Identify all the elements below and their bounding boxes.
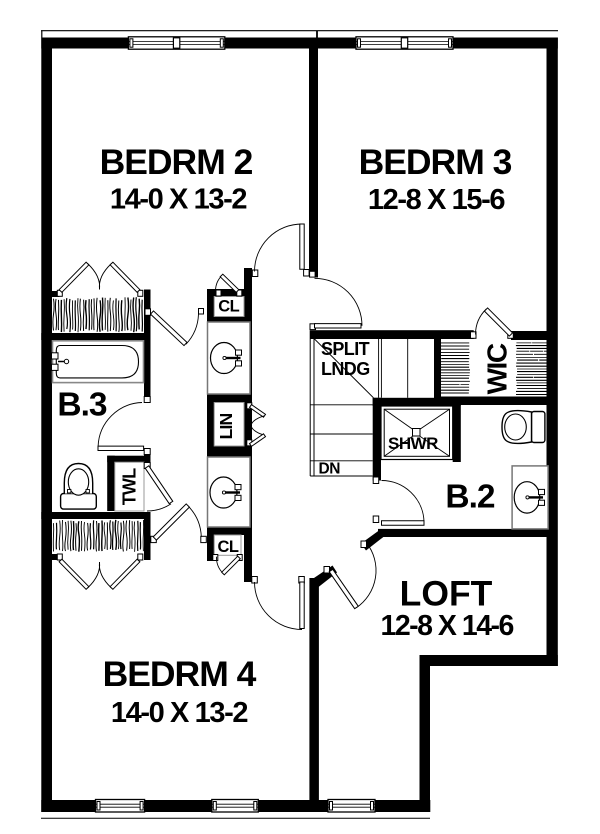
svg-text:SPLIT: SPLIT bbox=[321, 339, 370, 359]
svg-text:TWL: TWL bbox=[120, 468, 140, 505]
svg-text:B.3: B.3 bbox=[57, 386, 107, 423]
svg-text:LNDG: LNDG bbox=[321, 359, 370, 379]
svg-text:DN: DN bbox=[319, 461, 341, 478]
svg-text:WIC: WIC bbox=[482, 343, 513, 394]
svg-text:BEDRM 4: BEDRM 4 bbox=[103, 654, 257, 694]
svg-text:CL: CL bbox=[218, 298, 239, 316]
svg-text:CL: CL bbox=[218, 538, 239, 556]
svg-text:B.2: B.2 bbox=[445, 479, 495, 516]
svg-text:LIN: LIN bbox=[216, 413, 236, 439]
svg-text:12-8 X 15-6: 12-8 X 15-6 bbox=[368, 184, 505, 216]
svg-text:12-8 X 14-6: 12-8 X 14-6 bbox=[380, 610, 513, 642]
svg-text:BEDRM 2: BEDRM 2 bbox=[100, 142, 253, 182]
svg-text:14-0 X 13-2: 14-0 X 13-2 bbox=[111, 697, 247, 729]
svg-text:14-0 X 13-2: 14-0 X 13-2 bbox=[110, 184, 246, 216]
svg-text:BEDRM 3: BEDRM 3 bbox=[359, 142, 512, 182]
svg-text:LOFT: LOFT bbox=[400, 573, 493, 613]
svg-text:SHWR: SHWR bbox=[388, 434, 438, 453]
